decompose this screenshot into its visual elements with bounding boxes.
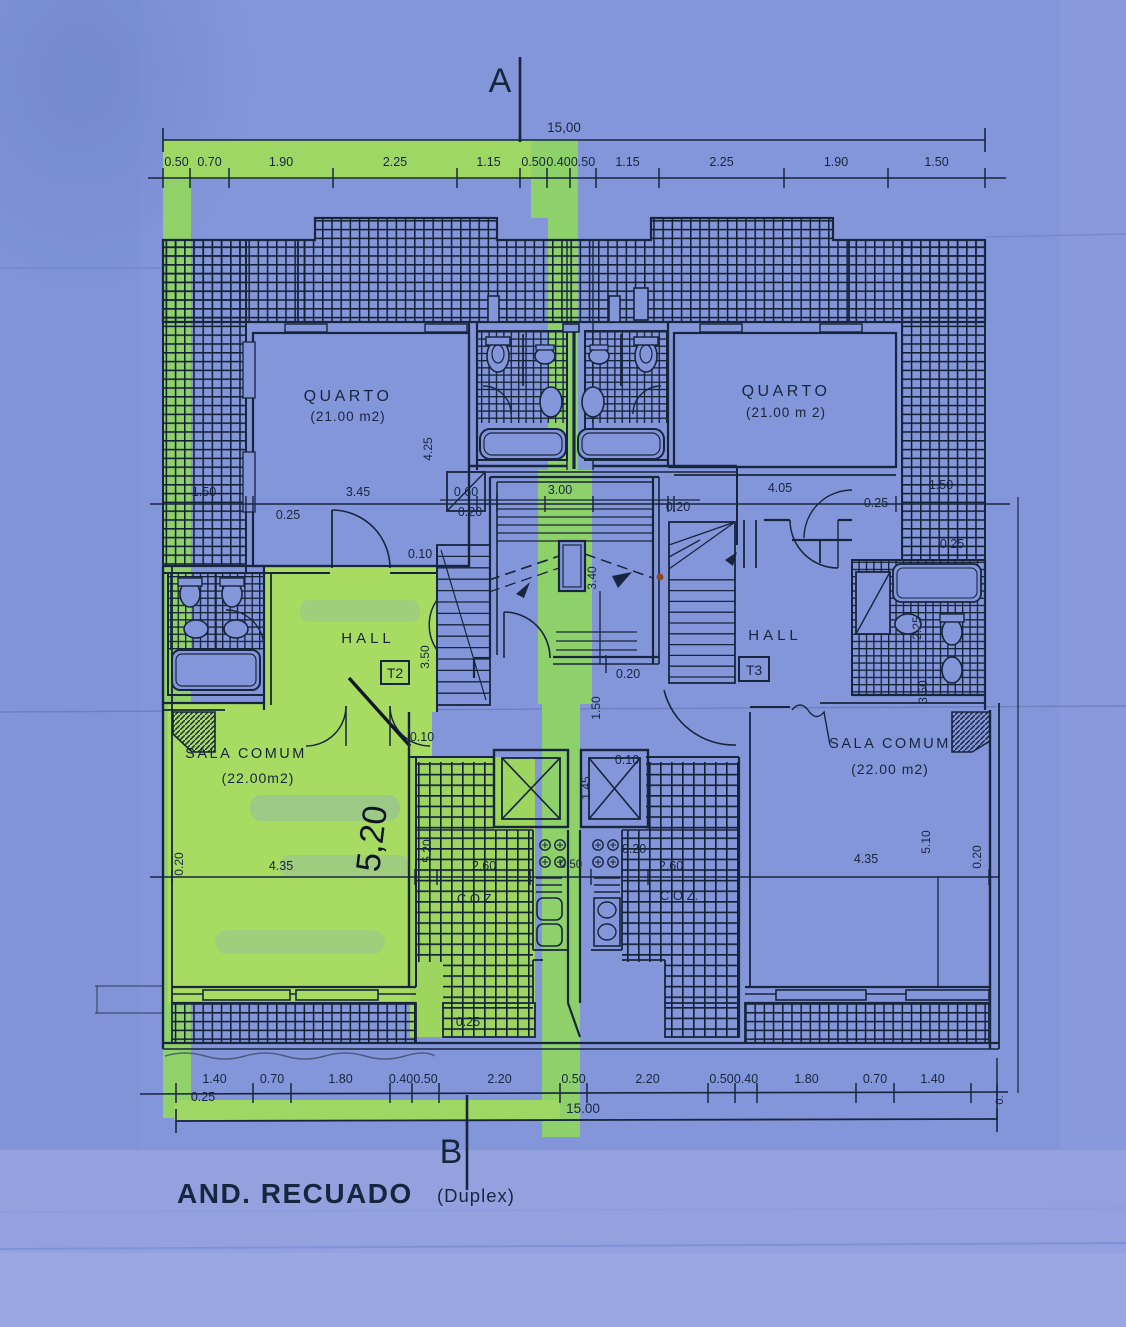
svg-text:C O Z.: C O Z. bbox=[660, 888, 698, 903]
svg-text:15.00: 15.00 bbox=[566, 1101, 600, 1116]
svg-text:(21.00 m2): (21.00 m2) bbox=[310, 409, 385, 424]
svg-text:0.25: 0.25 bbox=[940, 537, 964, 551]
svg-text:0.25: 0.25 bbox=[276, 508, 300, 522]
svg-text:0.70: 0.70 bbox=[863, 1072, 887, 1086]
svg-text:HALL: HALL bbox=[341, 630, 395, 647]
svg-text:1.90: 1.90 bbox=[269, 155, 293, 169]
svg-text:4.25: 4.25 bbox=[421, 437, 435, 461]
svg-text:2.25: 2.25 bbox=[709, 155, 733, 169]
svg-text:A: A bbox=[489, 62, 512, 100]
svg-text:0.20: 0.20 bbox=[666, 500, 690, 514]
svg-text:0.25: 0.25 bbox=[864, 496, 888, 510]
svg-text:T2: T2 bbox=[387, 665, 404, 681]
svg-text:C O Z.: C O Z. bbox=[457, 891, 495, 906]
svg-text:5.10: 5.10 bbox=[919, 830, 933, 854]
svg-text:1.50: 1.50 bbox=[192, 485, 216, 499]
svg-text:(22.00m2): (22.00m2) bbox=[222, 770, 295, 786]
svg-text:HALL: HALL bbox=[748, 627, 802, 644]
svg-text:2.60: 2.60 bbox=[472, 859, 496, 873]
svg-text:0.20: 0.20 bbox=[622, 842, 646, 856]
svg-text:0.25: 0.25 bbox=[191, 1090, 215, 1104]
svg-text:0.50: 0.50 bbox=[521, 155, 545, 169]
svg-text:3.40: 3.40 bbox=[585, 566, 599, 590]
svg-text:3.50: 3.50 bbox=[916, 680, 930, 704]
svg-text:0.10: 0.10 bbox=[408, 547, 432, 561]
svg-text:2.60: 2.60 bbox=[659, 859, 683, 873]
svg-text:1.50: 1.50 bbox=[589, 696, 603, 720]
svg-text:5,20: 5,20 bbox=[349, 803, 395, 873]
svg-text:1.80: 1.80 bbox=[794, 1072, 818, 1086]
svg-text:0.50: 0.50 bbox=[560, 859, 582, 871]
svg-text:QUARTO: QUARTO bbox=[742, 383, 831, 400]
svg-text:0.20: 0.20 bbox=[970, 845, 984, 869]
svg-text:SALA COMUM: SALA COMUM bbox=[829, 736, 951, 752]
svg-text:0.: 0. bbox=[994, 1095, 1006, 1104]
svg-text:0.50: 0.50 bbox=[709, 1072, 733, 1086]
svg-text:0.50: 0.50 bbox=[413, 1072, 437, 1086]
svg-text:2.25: 2.25 bbox=[910, 616, 924, 640]
svg-text:0.10: 0.10 bbox=[615, 753, 639, 767]
svg-text:0.20: 0.20 bbox=[616, 667, 640, 681]
svg-text:0.60: 0.60 bbox=[454, 485, 478, 499]
svg-text:0.40: 0.40 bbox=[389, 1072, 413, 1086]
svg-text:0.25: 0.25 bbox=[456, 1015, 480, 1029]
svg-text:0.20: 0.20 bbox=[458, 505, 482, 519]
svg-text:3.50: 3.50 bbox=[418, 645, 432, 669]
svg-text:AND. RECUADO: AND. RECUADO bbox=[177, 1178, 413, 1209]
svg-text:0.10: 0.10 bbox=[410, 730, 434, 744]
svg-text:2.20: 2.20 bbox=[487, 1072, 511, 1086]
svg-text:1.15: 1.15 bbox=[615, 155, 639, 169]
svg-text:1.40: 1.40 bbox=[202, 1072, 226, 1086]
svg-text:0.70: 0.70 bbox=[197, 155, 221, 169]
svg-text:4.35: 4.35 bbox=[854, 852, 878, 866]
svg-text:2.20: 2.20 bbox=[635, 1072, 659, 1086]
svg-text:(Duplex): (Duplex) bbox=[437, 1185, 515, 1206]
svg-text:(22.00 m2): (22.00 m2) bbox=[851, 761, 929, 777]
svg-text:(21.00 m 2): (21.00 m 2) bbox=[746, 405, 826, 420]
svg-text:5.20: 5.20 bbox=[420, 839, 434, 863]
svg-text:1.50: 1.50 bbox=[924, 155, 948, 169]
svg-text:0.50: 0.50 bbox=[571, 155, 595, 169]
svg-text:1.15: 1.15 bbox=[476, 155, 500, 169]
svg-text:T3: T3 bbox=[746, 662, 763, 678]
svg-text:2.25: 2.25 bbox=[383, 155, 407, 169]
svg-text:0.70: 0.70 bbox=[260, 1072, 284, 1086]
svg-text:QUARTO: QUARTO bbox=[304, 388, 393, 405]
svg-text:3.00: 3.00 bbox=[548, 483, 572, 497]
svg-text:0.40: 0.40 bbox=[546, 155, 570, 169]
svg-text:1.80: 1.80 bbox=[328, 1072, 352, 1086]
svg-text:15,00: 15,00 bbox=[547, 120, 581, 135]
svg-text:4.05: 4.05 bbox=[768, 481, 792, 495]
svg-text:4.35: 4.35 bbox=[269, 859, 293, 873]
svg-text:SALA COMUM: SALA COMUM bbox=[185, 746, 307, 762]
svg-text:3.45: 3.45 bbox=[346, 485, 370, 499]
svg-text:0.50: 0.50 bbox=[561, 1072, 585, 1086]
svg-text:0.40: 0.40 bbox=[734, 1072, 758, 1086]
svg-text:1.40: 1.40 bbox=[920, 1072, 944, 1086]
svg-text:0.50: 0.50 bbox=[164, 155, 188, 169]
svg-text:1.90: 1.90 bbox=[824, 155, 848, 169]
svg-text:B: B bbox=[440, 1133, 463, 1171]
svg-text:0.20: 0.20 bbox=[172, 852, 186, 876]
svg-text:1.50: 1.50 bbox=[929, 478, 953, 492]
svg-text:1.45: 1.45 bbox=[579, 776, 593, 800]
